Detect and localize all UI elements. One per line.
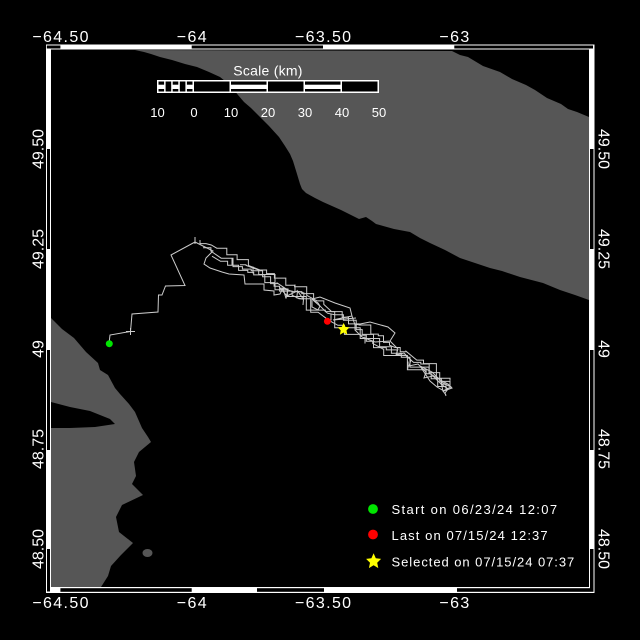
svg-text:−63: −63: [439, 595, 470, 612]
svg-text:0: 0: [190, 105, 197, 120]
svg-text:50: 50: [372, 105, 386, 120]
svg-text:−63: −63: [439, 29, 470, 46]
svg-text:20: 20: [261, 105, 275, 120]
svg-text:48.50: 48.50: [31, 529, 48, 569]
svg-text:40: 40: [335, 105, 349, 120]
svg-text:49.50: 49.50: [595, 129, 612, 169]
svg-text:−63.50: −63.50: [295, 29, 352, 46]
svg-text:Start on 06/23/24 12:07: Start on 06/23/24 12:07: [392, 502, 559, 517]
svg-text:49.25: 49.25: [595, 229, 612, 269]
svg-text:48.75: 48.75: [31, 429, 48, 469]
svg-text:Last on 07/15/24 12:37: Last on 07/15/24 12:37: [392, 528, 549, 543]
svg-text:49.25: 49.25: [31, 229, 48, 269]
svg-text:10: 10: [224, 105, 238, 120]
svg-text:48.75: 48.75: [595, 429, 612, 469]
svg-text:Selected on 07/15/24 07:37: Selected on 07/15/24 07:37: [392, 555, 576, 570]
svg-text:Scale (km): Scale (km): [233, 63, 302, 79]
svg-text:−64.50: −64.50: [32, 29, 89, 46]
svg-text:−64.50: −64.50: [32, 595, 89, 612]
svg-text:49: 49: [31, 340, 48, 358]
svg-text:48.50: 48.50: [595, 529, 612, 569]
svg-text:49: 49: [595, 340, 612, 358]
svg-text:49.50: 49.50: [31, 129, 48, 169]
svg-text:10: 10: [150, 105, 164, 120]
svg-text:30: 30: [298, 105, 312, 120]
svg-text:−63.50: −63.50: [295, 595, 352, 612]
svg-text:−64: −64: [177, 29, 208, 46]
svg-text:−64: −64: [177, 595, 208, 612]
